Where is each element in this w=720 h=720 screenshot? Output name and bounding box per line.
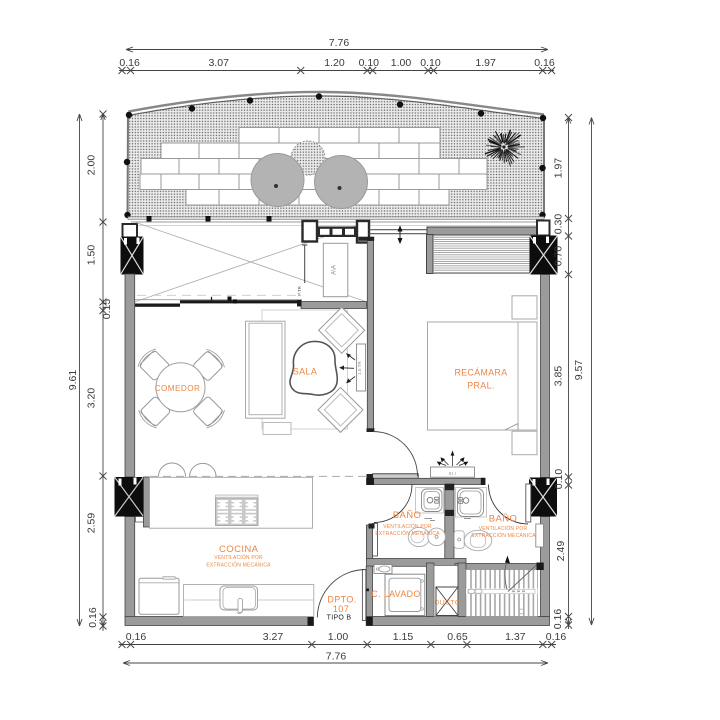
svg-text:1.00: 1.00 [391,57,412,69]
svg-text:P.TR: P.TR [297,285,302,295]
svg-text:2.49: 2.49 [555,541,567,562]
svg-text:SALA: SALA [293,367,318,377]
svg-text:DPTO.: DPTO. [327,595,356,605]
svg-text:0.10: 0.10 [359,57,380,69]
svg-text:2.59: 2.59 [86,513,98,534]
svg-text:VENTILACIÓN POR: VENTILACIÓN POR [214,554,263,561]
svg-text:0.16: 0.16 [126,631,147,643]
svg-text:EXTRACCIÓN MECÁNICA: EXTRACCIÓN MECÁNICA [206,561,271,568]
svg-text:VENTILACIÓN POR: VENTILACIÓN POR [479,525,528,532]
svg-text:3.85: 3.85 [553,366,565,387]
svg-text:TIPO B: TIPO B [327,615,352,622]
svg-text:0.16: 0.16 [552,609,564,630]
svg-text:COCINA: COCINA [219,544,259,555]
svg-text:3.27: 3.27 [263,631,284,643]
svg-text:EXTRACCIÓN MECÁNICA: EXTRACCIÓN MECÁNICA [471,532,536,539]
svg-text:0.10: 0.10 [420,57,441,69]
svg-text:A\A: A\A [332,265,338,275]
svg-text:COMEDOR: COMEDOR [155,384,201,393]
svg-text:0.15: 0.15 [101,299,113,320]
svg-text:0.65: 0.65 [447,631,468,643]
svg-text:PRAL.: PRAL. [467,381,494,391]
svg-text:0.70: 0.70 [553,246,565,267]
svg-text:7.76: 7.76 [326,651,347,663]
svg-text:107: 107 [333,604,349,614]
svg-text:1.37: 1.37 [505,631,526,643]
svg-text:81 I: 81 I [449,471,457,476]
svg-text:1.15: 1.15 [393,631,414,643]
svg-text:3.20: 3.20 [86,388,98,409]
svg-text:1.97: 1.97 [475,57,496,69]
svg-text:DUCTO: DUCTO [434,600,460,607]
svg-text:3.07: 3.07 [208,57,229,69]
svg-text:VENTILACIÓN POR: VENTILACIÓN POR [383,523,432,530]
svg-text:1.00: 1.00 [328,631,349,643]
svg-text:0.16: 0.16 [87,607,99,628]
svg-text:0.16: 0.16 [546,631,567,643]
svg-text:EXTRACCIÓN MECÁNICA: EXTRACCIÓN MECÁNICA [375,530,440,537]
svg-text:C. LAVADO: C. LAVADO [371,589,420,599]
svg-text:0.10: 0.10 [553,469,565,490]
svg-text:0.16: 0.16 [534,57,555,69]
svg-text:1.20: 1.20 [324,57,345,69]
svg-text:1.50: 1.50 [86,245,98,266]
svg-text:7.76: 7.76 [329,37,350,49]
svg-text:BAÑO: BAÑO [489,514,518,525]
svg-text:9.61: 9.61 [67,370,79,391]
svg-text:BAÑO: BAÑO [393,510,422,521]
svg-text:2.00: 2.00 [86,155,98,176]
svg-text:1.5 TR: 1.5 TR [357,361,362,375]
svg-text:0.30: 0.30 [553,214,565,235]
svg-text:9.57: 9.57 [573,360,585,381]
svg-text:1.97: 1.97 [553,158,565,179]
svg-text:RECÁMARA: RECÁMARA [454,368,507,378]
svg-text:0.16: 0.16 [119,57,140,69]
